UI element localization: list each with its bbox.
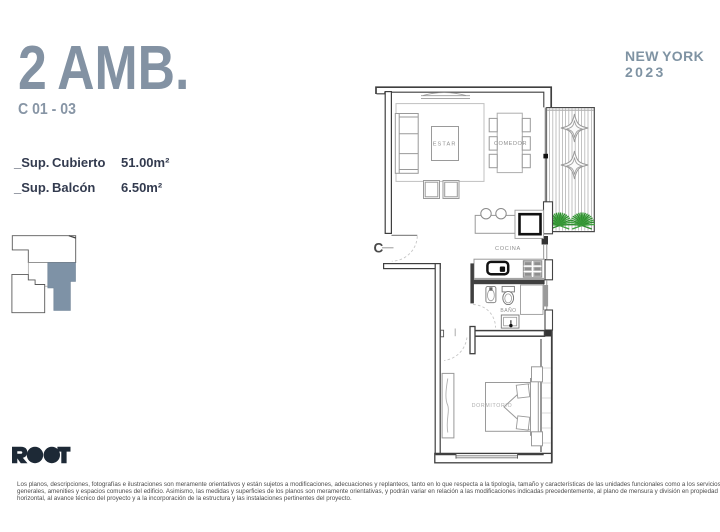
svg-text:COCINA: COCINA <box>495 246 521 252</box>
svg-text:BAÑO: BAÑO <box>500 307 516 314</box>
svg-text:DORMITORIO: DORMITORIO <box>472 403 513 409</box>
svg-text:ESTAR: ESTAR <box>433 142 457 148</box>
svg-text:COMEDOR: COMEDOR <box>494 141 527 147</box>
